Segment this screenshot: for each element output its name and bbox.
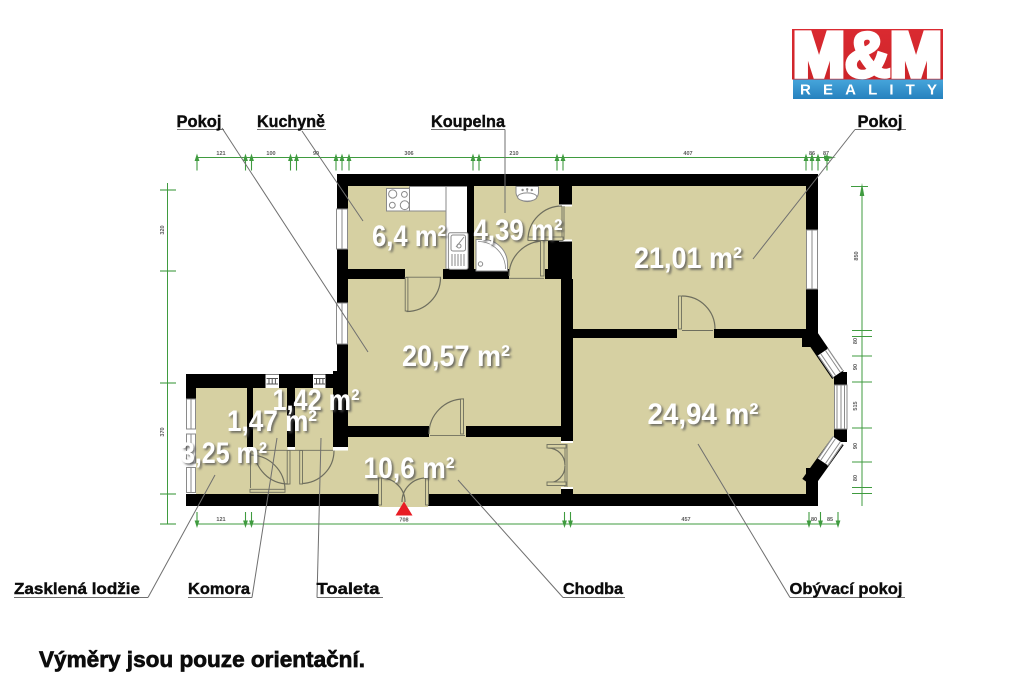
svg-text:306: 306 [404, 151, 413, 157]
svg-text:Chodba: Chodba [563, 581, 623, 598]
svg-text:100: 100 [266, 151, 275, 157]
svg-text:515: 515 [853, 401, 859, 410]
svg-text:90: 90 [853, 364, 859, 370]
svg-text:6,4 m²: 6,4 m² [372, 220, 446, 253]
svg-text:87: 87 [823, 151, 829, 157]
svg-text:370: 370 [160, 427, 166, 436]
svg-text:21,01 m²: 21,01 m² [634, 242, 742, 275]
svg-text:Pokoj: Pokoj [858, 112, 903, 131]
svg-text:850: 850 [854, 251, 860, 260]
svg-text:24,94 m²: 24,94 m² [648, 398, 759, 431]
svg-text:86: 86 [809, 151, 815, 157]
svg-text:90: 90 [853, 443, 859, 449]
svg-text:3,25 m²: 3,25 m² [181, 437, 267, 470]
svg-text:210: 210 [509, 151, 518, 157]
svg-text:407: 407 [683, 151, 692, 157]
svg-text:708: 708 [399, 518, 408, 524]
svg-text:Zasklená lodžie: Zasklená lodžie [14, 581, 140, 598]
svg-text:121: 121 [216, 151, 225, 157]
svg-text:Pokoj: Pokoj [177, 112, 222, 131]
svg-text:Obývací pokoj: Obývací pokoj [790, 581, 903, 598]
svg-text:457: 457 [681, 517, 690, 523]
svg-text:121: 121 [216, 517, 225, 523]
svg-text:85: 85 [827, 517, 833, 523]
svg-text:80: 80 [811, 517, 817, 523]
svg-text:10,6 m²: 10,6 m² [364, 452, 455, 485]
svg-text:80: 80 [853, 338, 859, 344]
svg-text:20,57 m²: 20,57 m² [402, 340, 510, 373]
svg-text:Koupelna: Koupelna [431, 112, 506, 131]
svg-text:4,39 m²: 4,39 m² [474, 214, 563, 247]
svg-text:80: 80 [853, 475, 859, 481]
svg-text:Toaleta: Toaleta [317, 581, 380, 598]
svg-text:Kuchyně: Kuchyně [257, 112, 325, 131]
svg-text:Komora: Komora [188, 581, 250, 598]
svg-text:Výměry jsou pouze orientační.: Výměry jsou pouze orientační. [39, 647, 365, 672]
svg-text:1,47 m²: 1,47 m² [227, 405, 317, 438]
svg-text:320: 320 [160, 225, 166, 234]
